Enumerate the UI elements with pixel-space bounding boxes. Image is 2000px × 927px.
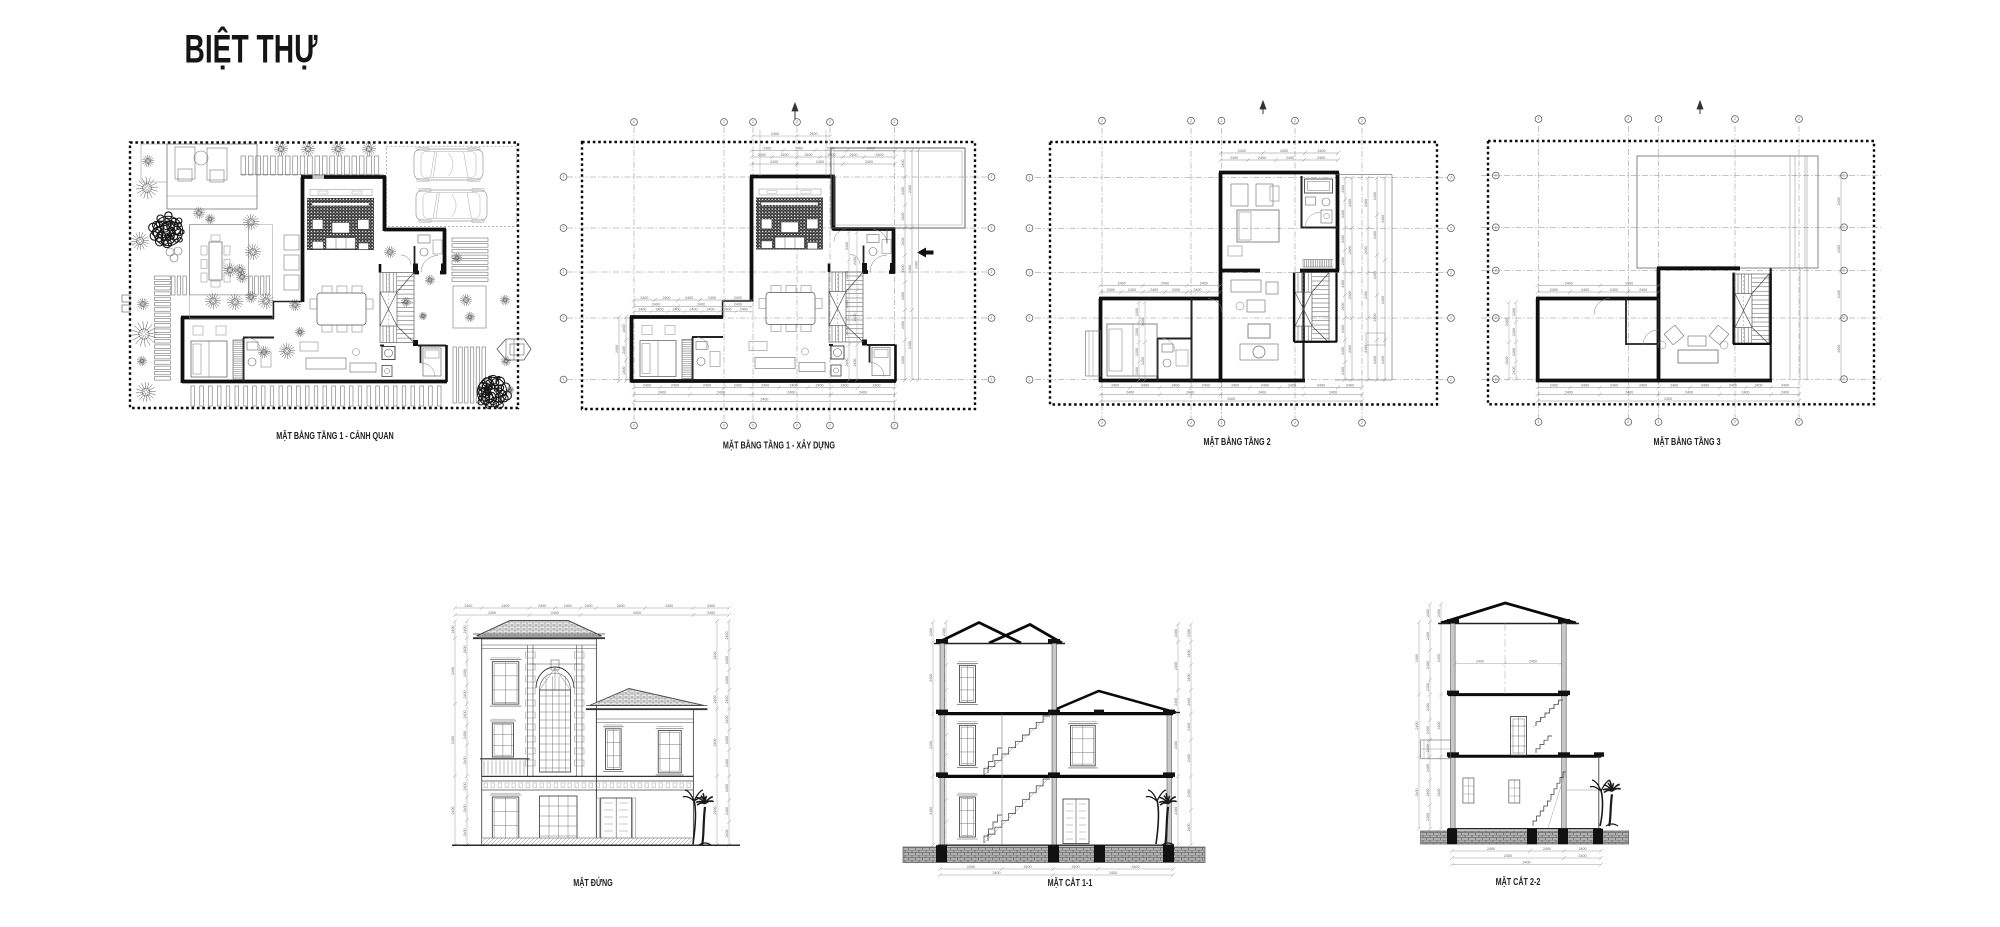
- svg-text:2400: 2400: [1317, 383, 1325, 387]
- svg-text:2400: 2400: [1426, 726, 1430, 734]
- svg-text:2400: 2400: [1426, 789, 1430, 797]
- svg-text:2400: 2400: [463, 805, 467, 813]
- svg-text:BIỆT THỰ: BIỆT THỰ: [184, 26, 317, 72]
- svg-text:2400: 2400: [845, 359, 849, 367]
- svg-text:2400: 2400: [1426, 703, 1430, 711]
- svg-text:2400: 2400: [873, 383, 881, 387]
- svg-text:2400: 2400: [1579, 847, 1587, 851]
- svg-text:2: 2: [1798, 420, 1800, 424]
- svg-text:2400: 2400: [725, 716, 729, 724]
- svg-text:2400: 2400: [1341, 257, 1345, 265]
- svg-text:2400: 2400: [1072, 865, 1080, 869]
- svg-text:2400: 2400: [463, 711, 467, 719]
- svg-text:2400: 2400: [671, 383, 679, 387]
- svg-text:2400: 2400: [1512, 367, 1516, 375]
- svg-text:2: 2: [633, 120, 635, 124]
- svg-text:2400: 2400: [725, 807, 729, 815]
- svg-text:2400: 2400: [622, 367, 626, 375]
- svg-text:2400: 2400: [1187, 629, 1191, 637]
- svg-text:2400: 2400: [1227, 397, 1235, 401]
- svg-text:2400: 2400: [1781, 390, 1789, 394]
- svg-text:2400: 2400: [713, 652, 717, 660]
- svg-text:2: 2: [1658, 117, 1660, 121]
- svg-text:2400: 2400: [1512, 328, 1516, 336]
- svg-text:2400: 2400: [1437, 654, 1441, 662]
- svg-text:2400: 2400: [1187, 698, 1191, 706]
- svg-text:2400: 2400: [781, 153, 789, 157]
- svg-text:2400: 2400: [1664, 397, 1672, 401]
- svg-text:2400: 2400: [1364, 345, 1368, 353]
- svg-text:2: 2: [1843, 226, 1845, 230]
- svg-text:2: 2: [633, 424, 635, 428]
- svg-text:2: 2: [563, 226, 565, 230]
- svg-text:2: 2: [1190, 119, 1192, 123]
- svg-text:2: 2: [991, 175, 993, 179]
- svg-text:MẶT BẰNG TẦNG 2: MẶT BẰNG TẦNG 2: [1203, 436, 1270, 447]
- svg-text:2400: 2400: [1174, 629, 1178, 637]
- svg-text:2: 2: [1190, 421, 1192, 425]
- svg-text:2400: 2400: [1109, 871, 1117, 875]
- svg-text:2400: 2400: [901, 213, 905, 221]
- svg-text:2400: 2400: [1280, 149, 1288, 153]
- svg-text:2: 2: [752, 424, 754, 428]
- svg-text:MẶT BẰNG TẦNG 1 - XÂY DỰNG: MẶT BẰNG TẦNG 1 - XÂY DỰNG: [723, 438, 835, 451]
- svg-text:2400: 2400: [929, 628, 933, 636]
- svg-text:2400: 2400: [1381, 356, 1385, 364]
- svg-text:2400: 2400: [1341, 347, 1345, 355]
- svg-text:2400: 2400: [724, 307, 732, 311]
- svg-text:2400: 2400: [1141, 383, 1149, 387]
- svg-text:2400: 2400: [685, 296, 693, 300]
- svg-text:2400: 2400: [734, 302, 742, 306]
- svg-text:2400: 2400: [1426, 683, 1430, 691]
- svg-text:MẶT CẮT 1-1: MẶT CẮT 1-1: [1048, 877, 1093, 888]
- svg-text:2400: 2400: [725, 736, 729, 744]
- svg-text:2400: 2400: [816, 383, 824, 387]
- svg-text:2400: 2400: [1610, 288, 1618, 292]
- svg-text:2: 2: [796, 120, 798, 124]
- svg-text:2400: 2400: [1755, 383, 1763, 387]
- svg-text:2400: 2400: [845, 242, 849, 250]
- svg-text:2400: 2400: [1415, 654, 1419, 662]
- svg-text:2400: 2400: [859, 390, 867, 394]
- svg-text:2: 2: [1029, 271, 1031, 275]
- svg-text:2400: 2400: [658, 390, 666, 394]
- svg-text:2: 2: [1450, 226, 1452, 230]
- svg-text:2: 2: [1843, 269, 1845, 273]
- svg-text:2400: 2400: [1111, 383, 1119, 387]
- svg-text:2: 2: [563, 270, 565, 274]
- svg-text:2400: 2400: [901, 321, 905, 329]
- svg-text:2400: 2400: [1579, 854, 1587, 858]
- svg-text:2400: 2400: [463, 626, 467, 634]
- svg-text:2400: 2400: [697, 302, 705, 306]
- svg-text:2400: 2400: [1341, 235, 1345, 243]
- svg-text:2400: 2400: [451, 667, 455, 675]
- svg-text:2400: 2400: [1329, 390, 1337, 394]
- svg-text:2400: 2400: [850, 153, 858, 157]
- svg-text:2400: 2400: [1670, 383, 1678, 387]
- svg-text:2: 2: [1361, 421, 1363, 425]
- svg-text:2400: 2400: [1373, 231, 1377, 239]
- svg-text:2400: 2400: [1529, 659, 1537, 663]
- svg-text:2400: 2400: [1346, 383, 1354, 387]
- svg-text:2: 2: [1734, 117, 1736, 121]
- svg-text:2400: 2400: [1543, 847, 1551, 851]
- svg-text:2400: 2400: [805, 153, 813, 157]
- svg-text:2400: 2400: [551, 611, 559, 615]
- svg-text:2400: 2400: [1437, 722, 1441, 730]
- svg-text:2400: 2400: [845, 271, 849, 279]
- svg-text:2: 2: [563, 378, 565, 382]
- svg-text:2400: 2400: [1729, 383, 1737, 387]
- svg-text:2400: 2400: [1581, 383, 1589, 387]
- svg-text:2400: 2400: [1512, 348, 1516, 356]
- svg-text:2400: 2400: [1172, 288, 1180, 292]
- svg-text:2400: 2400: [1174, 698, 1178, 706]
- svg-text:2: 2: [829, 120, 831, 124]
- svg-text:2400: 2400: [760, 397, 768, 401]
- svg-text:2400: 2400: [707, 604, 715, 608]
- svg-text:2: 2: [1450, 176, 1452, 180]
- svg-text:2400: 2400: [1381, 215, 1385, 223]
- svg-text:2: 2: [1294, 119, 1296, 123]
- svg-text:2400: 2400: [1504, 854, 1512, 858]
- svg-text:2400: 2400: [638, 307, 646, 311]
- svg-text:2400: 2400: [929, 741, 933, 749]
- svg-text:2400: 2400: [1565, 390, 1573, 394]
- svg-text:2400: 2400: [463, 829, 467, 837]
- svg-text:2: 2: [1101, 421, 1103, 425]
- svg-text:2: 2: [1029, 378, 1031, 382]
- svg-text:2400: 2400: [758, 153, 766, 157]
- svg-text:2: 2: [1221, 421, 1223, 425]
- svg-text:2400: 2400: [1373, 356, 1377, 364]
- svg-text:2400: 2400: [488, 611, 496, 615]
- svg-text:2400: 2400: [790, 383, 798, 387]
- svg-text:2: 2: [1658, 420, 1660, 424]
- svg-text:2: 2: [829, 424, 831, 428]
- svg-text:2400: 2400: [673, 307, 681, 311]
- svg-text:2400: 2400: [617, 604, 625, 608]
- svg-text:2400: 2400: [1231, 383, 1239, 387]
- svg-text:2400: 2400: [1174, 741, 1178, 749]
- svg-text:2400: 2400: [734, 296, 742, 300]
- svg-text:2400: 2400: [665, 604, 673, 608]
- svg-text:2400: 2400: [640, 296, 648, 300]
- svg-text:MẶT ĐỨNG: MẶT ĐỨNG: [573, 876, 613, 889]
- svg-text:2400: 2400: [828, 153, 836, 157]
- svg-text:2400: 2400: [1364, 246, 1368, 254]
- svg-text:2400: 2400: [1426, 813, 1430, 821]
- svg-text:2400: 2400: [1610, 383, 1618, 387]
- svg-text:2: 2: [563, 316, 565, 320]
- svg-text:2400: 2400: [463, 783, 467, 791]
- svg-text:2: 2: [1495, 174, 1497, 178]
- svg-text:2400: 2400: [713, 739, 717, 747]
- svg-text:2: 2: [1361, 119, 1363, 123]
- svg-text:2400: 2400: [1348, 291, 1352, 299]
- svg-text:2: 2: [1029, 226, 1031, 230]
- svg-text:2400: 2400: [1426, 632, 1430, 640]
- svg-text:2400: 2400: [1381, 296, 1385, 304]
- svg-text:2400: 2400: [795, 146, 803, 150]
- svg-text:2400: 2400: [717, 390, 725, 394]
- svg-text:2: 2: [991, 378, 993, 382]
- svg-text:2400: 2400: [761, 383, 769, 387]
- svg-text:2400: 2400: [1286, 156, 1294, 160]
- svg-text:2400: 2400: [908, 265, 912, 273]
- svg-text:2: 2: [1029, 316, 1031, 320]
- svg-text:2400: 2400: [463, 646, 467, 654]
- svg-text:2400: 2400: [663, 296, 671, 300]
- svg-text:2400: 2400: [827, 146, 835, 150]
- svg-text:2400: 2400: [725, 632, 729, 640]
- svg-text:2: 2: [991, 226, 993, 230]
- svg-text:2400: 2400: [1187, 674, 1191, 682]
- svg-text:2400: 2400: [901, 160, 905, 168]
- svg-text:2400: 2400: [725, 656, 729, 664]
- svg-text:2400: 2400: [929, 674, 933, 682]
- svg-text:2400: 2400: [1187, 754, 1191, 762]
- svg-text:2400: 2400: [1437, 609, 1441, 617]
- svg-text:2400: 2400: [1024, 865, 1032, 869]
- svg-text:2400: 2400: [1550, 288, 1558, 292]
- svg-text:2400: 2400: [725, 830, 729, 838]
- svg-text:2400: 2400: [1132, 865, 1140, 869]
- svg-text:2: 2: [1843, 377, 1845, 381]
- svg-text:2400: 2400: [585, 604, 593, 608]
- svg-text:2400: 2400: [929, 807, 933, 815]
- svg-text:2400: 2400: [1135, 367, 1139, 375]
- svg-text:2400: 2400: [713, 696, 717, 704]
- svg-text:2400: 2400: [463, 731, 467, 739]
- svg-text:2: 2: [1221, 119, 1223, 123]
- svg-text:2400: 2400: [853, 257, 857, 265]
- svg-text:2: 2: [991, 316, 993, 320]
- svg-text:2400: 2400: [1187, 650, 1191, 658]
- svg-text:2: 2: [723, 120, 725, 124]
- svg-text:2400: 2400: [1550, 383, 1558, 387]
- svg-text:2400: 2400: [763, 146, 771, 150]
- svg-text:2400: 2400: [1258, 390, 1266, 394]
- svg-text:2400: 2400: [1837, 345, 1841, 353]
- svg-text:2400: 2400: [1505, 318, 1509, 326]
- svg-text:2400: 2400: [633, 611, 641, 615]
- svg-text:2: 2: [1495, 316, 1497, 320]
- svg-text:2: 2: [1495, 226, 1497, 230]
- svg-text:2: 2: [1627, 420, 1629, 424]
- svg-text:2400: 2400: [841, 383, 849, 387]
- svg-text:2400: 2400: [690, 307, 698, 311]
- svg-text:2400: 2400: [1341, 325, 1345, 333]
- svg-text:2: 2: [1495, 377, 1497, 381]
- svg-text:2400: 2400: [725, 784, 729, 792]
- svg-text:2400: 2400: [1161, 281, 1169, 285]
- svg-text:2400: 2400: [1415, 789, 1419, 797]
- svg-text:2400: 2400: [1150, 288, 1158, 292]
- svg-text:2400: 2400: [1415, 722, 1419, 730]
- svg-text:2400: 2400: [1258, 156, 1266, 160]
- svg-text:MẶT BẰNG TẦNG 3: MẶT BẰNG TẦNG 3: [1653, 436, 1720, 447]
- svg-text:2: 2: [723, 424, 725, 428]
- svg-text:2400: 2400: [1202, 383, 1210, 387]
- svg-text:2: 2: [1734, 420, 1736, 424]
- svg-text:2: 2: [1538, 117, 1540, 121]
- svg-text:2400: 2400: [1364, 199, 1368, 207]
- svg-text:2400: 2400: [703, 383, 711, 387]
- svg-text:2400: 2400: [708, 296, 716, 300]
- svg-text:2400: 2400: [967, 865, 975, 869]
- svg-text:2: 2: [894, 120, 896, 124]
- svg-text:2400: 2400: [993, 871, 1001, 875]
- svg-text:2400: 2400: [845, 300, 849, 308]
- svg-text:2400: 2400: [1426, 764, 1430, 772]
- svg-text:2400: 2400: [901, 265, 905, 273]
- svg-text:2400: 2400: [451, 626, 455, 634]
- svg-text:2400: 2400: [725, 696, 729, 704]
- svg-text:2400: 2400: [1781, 383, 1789, 387]
- svg-text:2400: 2400: [1742, 390, 1750, 394]
- svg-text:2400: 2400: [1135, 328, 1139, 336]
- svg-text:2400: 2400: [787, 390, 795, 394]
- svg-text:2400: 2400: [1107, 288, 1115, 292]
- svg-text:2400: 2400: [1341, 185, 1345, 193]
- svg-text:2400: 2400: [908, 341, 912, 349]
- svg-text:2: 2: [1798, 117, 1800, 121]
- svg-text:2400: 2400: [463, 691, 467, 699]
- svg-text:2400: 2400: [1135, 308, 1139, 316]
- svg-text:2400: 2400: [463, 757, 467, 765]
- svg-text:2400: 2400: [1426, 661, 1430, 669]
- svg-text:2400: 2400: [1341, 367, 1345, 375]
- svg-text:2400: 2400: [725, 759, 729, 767]
- svg-text:2400: 2400: [1625, 281, 1633, 285]
- svg-text:2400: 2400: [1523, 860, 1531, 864]
- svg-text:2400: 2400: [1685, 390, 1693, 394]
- svg-text:2: 2: [563, 175, 565, 179]
- svg-text:2400: 2400: [1581, 288, 1589, 292]
- svg-text:2400: 2400: [908, 185, 912, 193]
- svg-text:2400: 2400: [901, 356, 905, 364]
- svg-text:2400: 2400: [1135, 348, 1139, 356]
- svg-text:2400: 2400: [1701, 383, 1709, 387]
- svg-text:2400: 2400: [725, 676, 729, 684]
- svg-text:2: 2: [894, 424, 896, 428]
- svg-text:2400: 2400: [1476, 659, 1484, 663]
- svg-text:2400: 2400: [1230, 156, 1238, 160]
- svg-text:2400: 2400: [1174, 807, 1178, 815]
- svg-text:2: 2: [1843, 316, 1845, 320]
- svg-text:2400: 2400: [451, 736, 455, 744]
- svg-text:2: 2: [991, 270, 993, 274]
- svg-text:2400: 2400: [853, 359, 857, 367]
- svg-text:2400: 2400: [1639, 383, 1647, 387]
- svg-text:2400: 2400: [1341, 210, 1345, 218]
- svg-text:2400: 2400: [1341, 280, 1345, 288]
- svg-text:2400: 2400: [1238, 149, 1246, 153]
- svg-text:2400: 2400: [1437, 789, 1441, 797]
- svg-text:2400: 2400: [816, 160, 824, 164]
- svg-text:2400: 2400: [1348, 199, 1352, 207]
- svg-text:2400: 2400: [538, 604, 546, 608]
- svg-text:2400: 2400: [942, 628, 946, 636]
- svg-text:2400: 2400: [1194, 288, 1202, 292]
- svg-text:2400: 2400: [622, 346, 626, 354]
- svg-text:2: 2: [1538, 420, 1540, 424]
- svg-text:2400: 2400: [1639, 288, 1647, 292]
- svg-text:2400: 2400: [865, 160, 873, 164]
- svg-text:2400: 2400: [853, 314, 857, 322]
- svg-text:2400: 2400: [901, 238, 905, 246]
- svg-text:2400: 2400: [1373, 192, 1377, 200]
- svg-text:2400: 2400: [1172, 383, 1180, 387]
- svg-text:2400: 2400: [1348, 246, 1352, 254]
- svg-text:MẶT CẮT 2-2: MẶT CẮT 2-2: [1496, 876, 1541, 887]
- svg-text:2400: 2400: [740, 307, 748, 311]
- svg-text:2400: 2400: [1341, 303, 1345, 311]
- svg-text:2400: 2400: [1118, 281, 1126, 285]
- svg-text:2: 2: [796, 424, 798, 428]
- svg-text:2400: 2400: [502, 604, 510, 608]
- svg-text:2400: 2400: [564, 604, 572, 608]
- svg-text:2: 2: [1450, 316, 1452, 320]
- svg-text:2400: 2400: [1141, 357, 1145, 365]
- svg-text:2400: 2400: [707, 611, 715, 615]
- svg-text:2400: 2400: [652, 302, 660, 306]
- svg-text:2400: 2400: [1187, 789, 1191, 797]
- svg-text:2400: 2400: [1318, 149, 1326, 153]
- svg-text:2400: 2400: [734, 383, 742, 387]
- svg-text:2: 2: [1843, 174, 1845, 178]
- svg-text:2: 2: [1450, 271, 1452, 275]
- svg-text:2400: 2400: [1625, 390, 1633, 394]
- svg-text:2400: 2400: [1174, 662, 1178, 670]
- svg-text:2: 2: [1450, 378, 1452, 382]
- svg-text:2400: 2400: [810, 132, 818, 136]
- svg-text:2: 2: [752, 120, 754, 124]
- svg-text:2400: 2400: [1288, 383, 1296, 387]
- svg-text:2400: 2400: [845, 328, 849, 336]
- svg-text:2400: 2400: [1512, 308, 1516, 316]
- svg-text:2400: 2400: [463, 669, 467, 677]
- svg-text:MẶT BẰNG TẦNG 1 - CẢNH QUAN: MẶT BẰNG TẦNG 1 - CẢNH QUAN: [276, 429, 393, 442]
- svg-text:2400: 2400: [1200, 281, 1208, 285]
- svg-text:2400: 2400: [1487, 847, 1495, 851]
- svg-text:2400: 2400: [1186, 390, 1194, 394]
- svg-text:2400: 2400: [707, 307, 715, 311]
- svg-text:2400: 2400: [1565, 281, 1573, 285]
- svg-text:2400: 2400: [1187, 824, 1191, 832]
- svg-text:2400: 2400: [464, 604, 472, 608]
- svg-text:2400: 2400: [615, 345, 619, 353]
- svg-text:2400: 2400: [1426, 609, 1430, 617]
- svg-text:2400: 2400: [1261, 383, 1269, 387]
- svg-text:2400: 2400: [1373, 271, 1377, 279]
- svg-text:2400: 2400: [1837, 245, 1841, 253]
- svg-text:2400: 2400: [1364, 291, 1368, 299]
- svg-text:2: 2: [1627, 117, 1629, 121]
- svg-text:2400: 2400: [622, 325, 626, 333]
- svg-text:2400: 2400: [1505, 357, 1509, 365]
- svg-text:2400: 2400: [1126, 390, 1134, 394]
- svg-text:2400: 2400: [1141, 318, 1145, 326]
- svg-text:2400: 2400: [901, 292, 905, 300]
- svg-text:2: 2: [1029, 176, 1031, 180]
- svg-text:2400: 2400: [656, 307, 664, 311]
- svg-text:2400: 2400: [771, 132, 779, 136]
- svg-text:2400: 2400: [867, 146, 875, 150]
